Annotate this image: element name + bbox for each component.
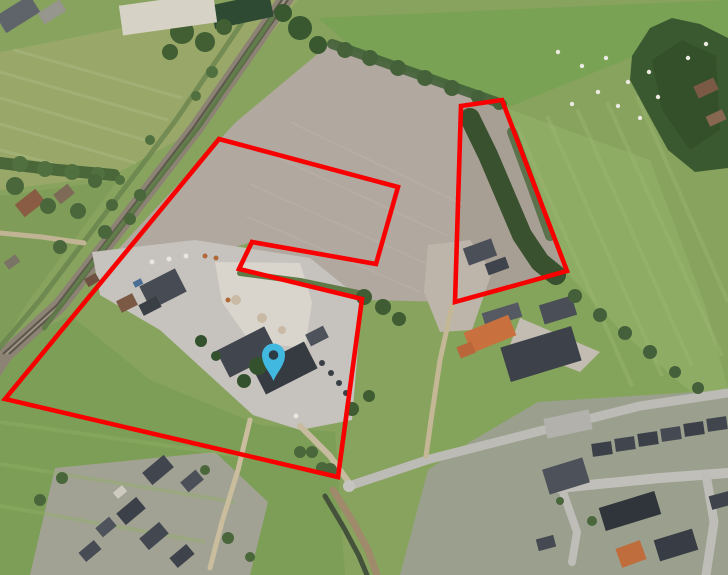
trees xyxy=(556,497,564,505)
trees xyxy=(40,198,56,214)
trees xyxy=(222,532,234,544)
junction-group xyxy=(343,480,355,492)
trees xyxy=(200,465,210,475)
sheep xyxy=(616,104,620,108)
trees xyxy=(191,91,201,101)
sheep xyxy=(556,50,560,54)
tree-clump xyxy=(274,4,292,22)
equipment xyxy=(226,298,231,303)
terraced-roof xyxy=(614,436,636,452)
roadside-trees xyxy=(692,382,704,394)
trees xyxy=(145,135,155,145)
trees xyxy=(134,189,146,201)
trees xyxy=(106,199,118,211)
treeline-trees xyxy=(362,50,378,66)
debris xyxy=(278,326,286,334)
equipment xyxy=(214,256,219,261)
roadside-trees xyxy=(568,289,582,303)
roadside-trees xyxy=(593,308,607,322)
equipment xyxy=(203,254,208,259)
hedgerow-trees xyxy=(12,156,28,172)
trees xyxy=(6,177,24,195)
trees xyxy=(306,446,318,458)
scene-layer xyxy=(0,0,728,575)
trees xyxy=(124,213,136,225)
hedgerow-trees xyxy=(64,164,80,180)
tree-clump xyxy=(309,36,327,54)
parked-cars xyxy=(294,414,299,419)
roadside-trees xyxy=(618,326,632,340)
trees xyxy=(115,175,125,185)
treeline-trees xyxy=(390,60,406,76)
treeline-trees xyxy=(444,80,460,96)
sheep xyxy=(570,102,574,106)
trees xyxy=(56,472,68,484)
sheep xyxy=(626,80,630,84)
sheep xyxy=(580,64,584,68)
sheep xyxy=(647,70,651,74)
terraced-roof xyxy=(660,426,682,442)
sheep xyxy=(604,56,608,60)
trees xyxy=(34,494,46,506)
tree-clump xyxy=(216,19,232,35)
sheep xyxy=(704,42,708,46)
trees xyxy=(206,66,218,78)
trees xyxy=(245,552,255,562)
trees xyxy=(53,240,67,254)
debris xyxy=(257,313,267,323)
trees xyxy=(98,225,112,239)
trees xyxy=(195,335,207,347)
trees xyxy=(363,390,375,402)
trees xyxy=(587,516,597,526)
parked-cars xyxy=(167,257,172,262)
sheep xyxy=(596,90,600,94)
trees xyxy=(294,446,306,458)
junction xyxy=(343,480,355,492)
hedgerow-trees xyxy=(37,161,53,177)
trees xyxy=(211,351,221,361)
tree-clump xyxy=(162,44,178,60)
treeline-trees xyxy=(337,42,353,58)
trees xyxy=(237,374,251,388)
tree-clump xyxy=(195,32,215,52)
trees xyxy=(70,203,86,219)
parked-cars xyxy=(319,360,325,366)
parked-cars xyxy=(336,380,342,386)
trees xyxy=(392,312,406,326)
treeline-trees xyxy=(417,70,433,86)
parked-cars xyxy=(328,370,334,376)
trees xyxy=(375,299,391,315)
terraced-roof xyxy=(706,416,728,432)
roadside-trees xyxy=(643,345,657,359)
map-canvas xyxy=(0,0,728,575)
sheep xyxy=(656,95,660,99)
sheep xyxy=(686,56,690,60)
terraced-roof xyxy=(637,431,659,447)
trees xyxy=(88,174,102,188)
parked-cars xyxy=(184,254,189,259)
parked-cars xyxy=(150,260,155,265)
terraced-roof xyxy=(683,421,705,437)
terraced-roof xyxy=(591,441,613,457)
debris xyxy=(231,295,241,305)
location-pin-hole xyxy=(269,350,279,360)
roadside-trees xyxy=(669,366,681,378)
sheep xyxy=(638,116,642,120)
aerial-map[interactable] xyxy=(0,0,728,575)
tree-clump xyxy=(288,16,312,40)
